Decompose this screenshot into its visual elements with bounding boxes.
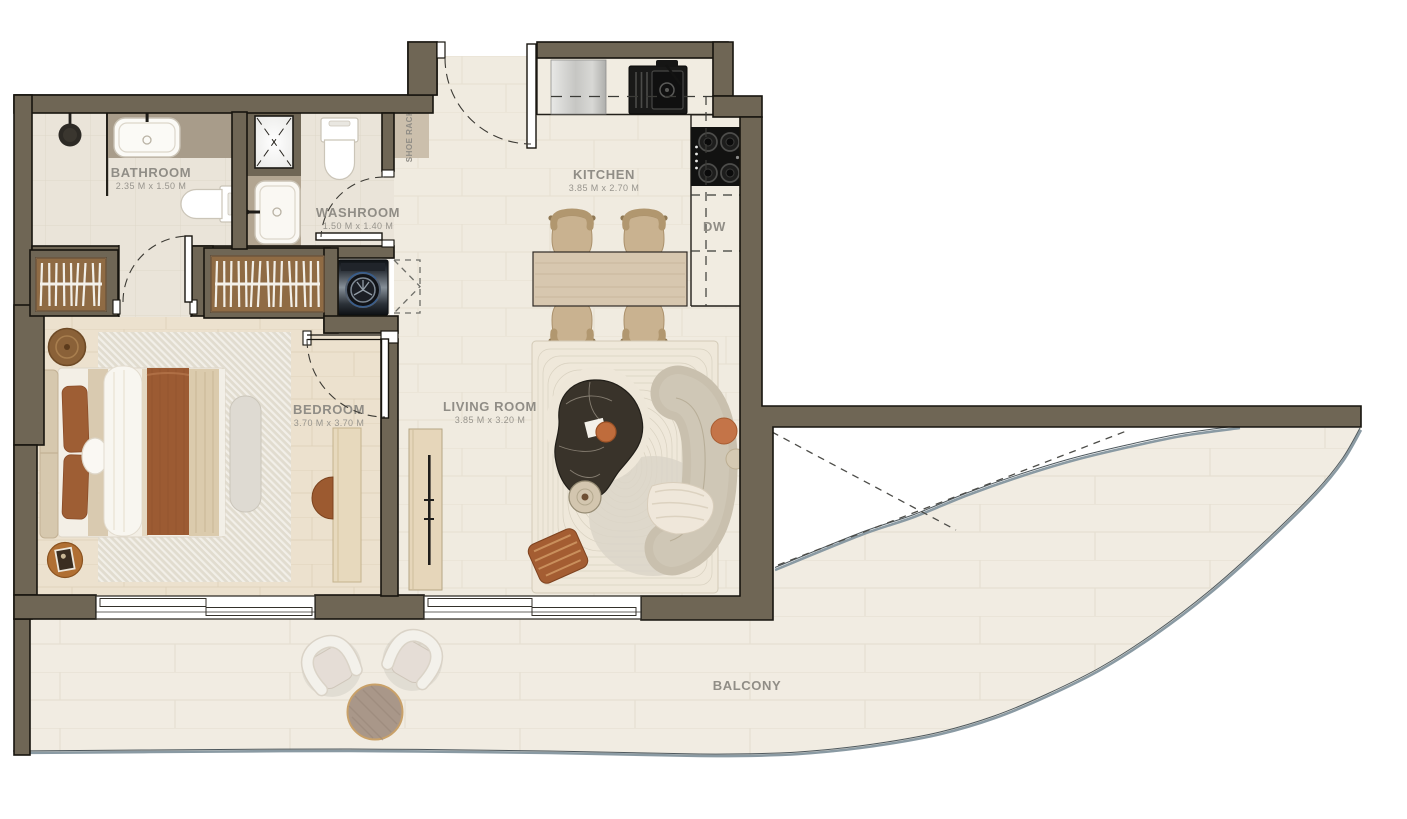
svg-text:KITCHEN: KITCHEN xyxy=(573,167,635,182)
svg-text:3.85 M x 3.20 M: 3.85 M x 3.20 M xyxy=(455,415,526,425)
svg-text:DW: DW xyxy=(703,219,726,234)
svg-text:2.35 M x 1.50 M: 2.35 M x 1.50 M xyxy=(116,181,187,191)
svg-text:LIVING ROOM: LIVING ROOM xyxy=(443,399,537,414)
svg-text:SHOE RACK: SHOE RACK xyxy=(405,110,414,163)
svg-text:BATHROOM: BATHROOM xyxy=(111,165,191,180)
svg-text:3.85 M x 2.70 M: 3.85 M x 2.70 M xyxy=(569,183,640,193)
svg-text:3.70 M x 3.70 M: 3.70 M x 3.70 M xyxy=(294,418,365,428)
svg-text:BEDROOM: BEDROOM xyxy=(293,402,365,417)
svg-text:BALCONY: BALCONY xyxy=(713,678,781,693)
svg-text:1.50 M x 1.40 M: 1.50 M x 1.40 M xyxy=(323,221,394,231)
svg-text:WASHROOM: WASHROOM xyxy=(316,205,400,220)
